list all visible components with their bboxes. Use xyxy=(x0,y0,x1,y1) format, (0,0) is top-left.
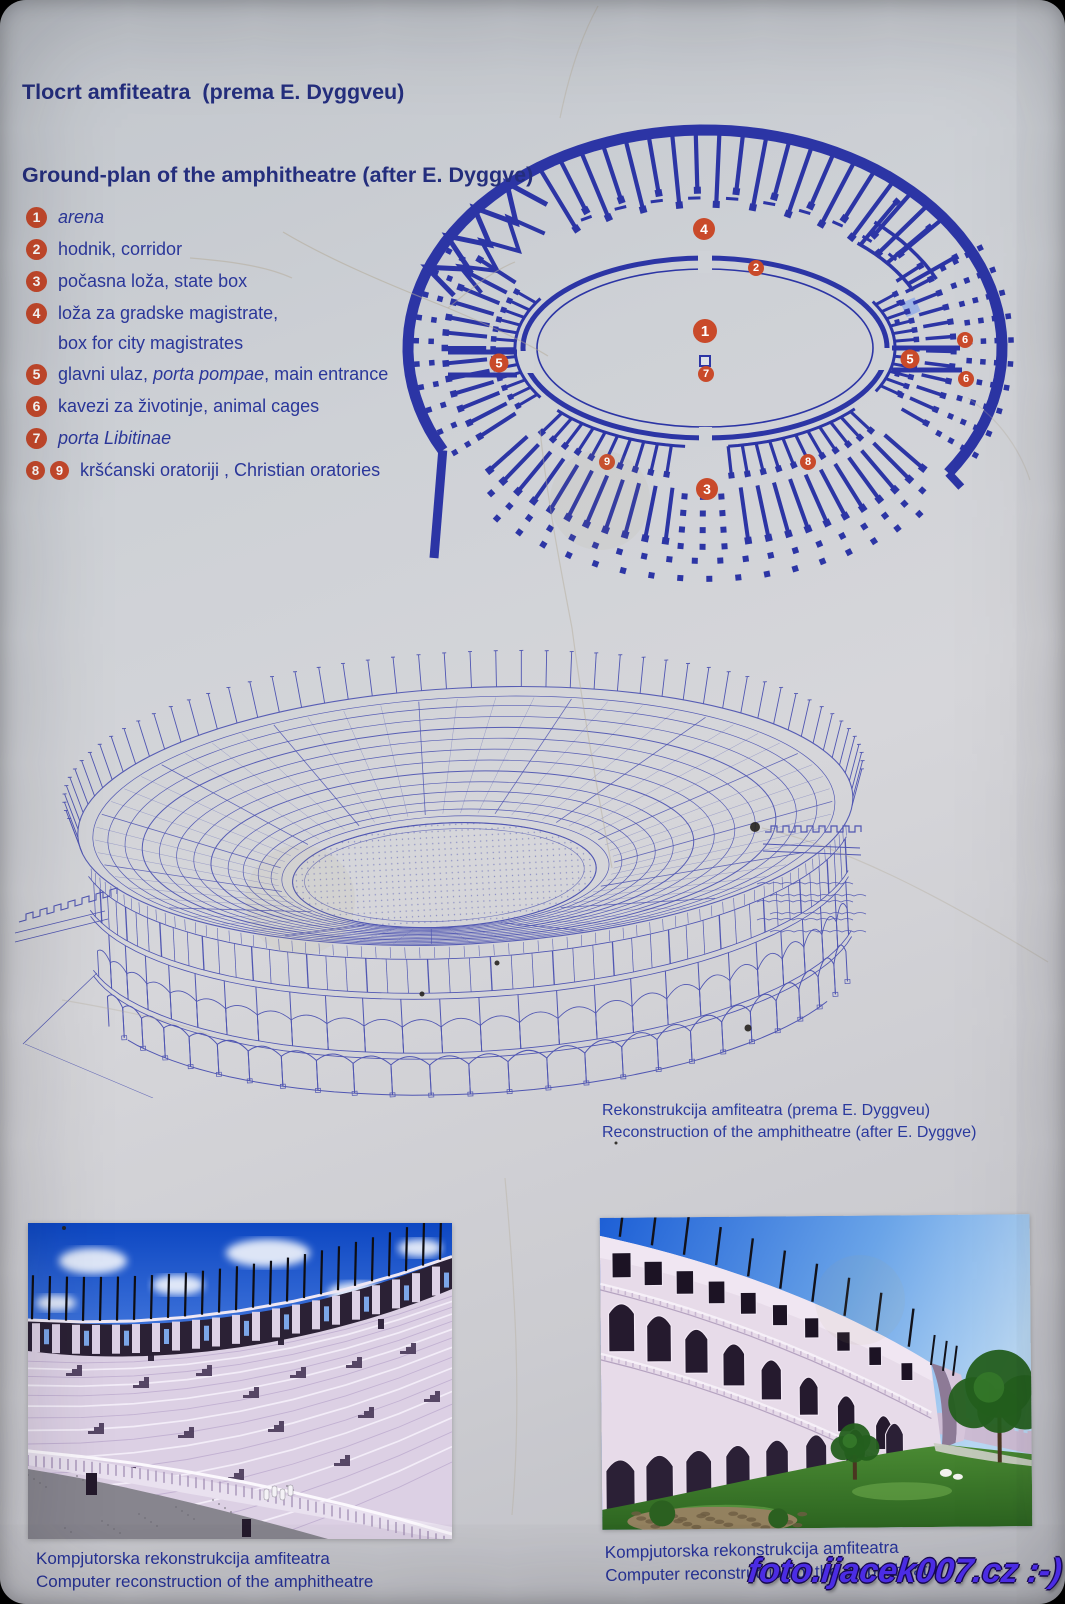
plan-marker: 9 xyxy=(599,454,615,470)
plan-marker: 5 xyxy=(901,350,920,369)
title-english: Ground-plan of the amphitheatre (after E… xyxy=(22,162,533,190)
numbered-circle-icon: 8 xyxy=(26,461,45,480)
legend-item-magistrates-box: 4 loža za gradske magistrate, xyxy=(26,297,388,329)
reconstruction-perspective-drawing xyxy=(5,648,875,1098)
legend-item-state-box: 3 počasna loža, state box xyxy=(26,265,388,297)
plan-marker: 7 xyxy=(698,366,714,382)
legend-item-christian-oratories: 8 9 kršćanski oratoriji , Christian orat… xyxy=(26,454,388,486)
numbered-circle-icon: 1 xyxy=(26,207,47,228)
plan-marker: 2 xyxy=(748,260,764,276)
numbered-circle-icon: 4 xyxy=(26,303,47,324)
legend-item-corridor: 2 hodnik, corridor xyxy=(26,233,388,265)
plan-marker: 8 xyxy=(800,454,816,470)
numbered-circle-icon: 2 xyxy=(26,239,47,260)
photographed-info-panel: { "colors": { "plan_blue": "#2c35a5", "t… xyxy=(0,0,1065,1604)
legend-item-magistrates-box-line2: box for city magistrates xyxy=(26,329,388,358)
photographer-watermark: foto.ijacek007.cz :-) xyxy=(746,1552,1064,1591)
numbered-circle-icon: 7 xyxy=(26,428,47,449)
plan-legend: 1 arena 2 hodnik, corridor 3 počasna lož… xyxy=(26,201,388,486)
plan-marker: 3 xyxy=(696,478,718,500)
photo-left-caption: Kompjutorska rekonstrukcija amfiteatra C… xyxy=(36,1547,373,1593)
legend-item-porta-libitinae: 7 porta Libitinae xyxy=(26,422,388,454)
legend-item-main-entrance: 5 glavni ulaz, porta pompae, main entran… xyxy=(26,358,388,390)
numbered-circle-icon: 5 xyxy=(26,364,47,385)
plan-marker: 6 xyxy=(957,332,973,348)
numbered-circle-icon: 6 xyxy=(26,396,47,417)
title-croatian: Tlocrt amfiteatra (prema E. Dyggveu) xyxy=(22,79,533,107)
numbered-circle-icon: 9 xyxy=(50,461,69,480)
plan-marker: 1 xyxy=(693,319,717,343)
legend-item-arena: 1 arena xyxy=(26,201,388,233)
plan-marker: 5 xyxy=(490,354,509,373)
numbered-circle-icon: 3 xyxy=(26,271,47,292)
photo-interior-reconstruction xyxy=(28,1223,452,1539)
plan-marker: 4 xyxy=(693,218,715,240)
sign-background: Tlocrt amfiteatra (prema E. Dyggveu) Gro… xyxy=(0,0,1065,1604)
plan-marker: 6 xyxy=(958,371,974,387)
photo-exterior-reconstruction xyxy=(600,1214,1033,1530)
reconstruction-caption: Rekonstrukcija amfiteatra (prema E. Dygg… xyxy=(602,1100,976,1144)
legend-item-animal-cages: 6 kavezi za životinje, animal cages xyxy=(26,390,388,422)
